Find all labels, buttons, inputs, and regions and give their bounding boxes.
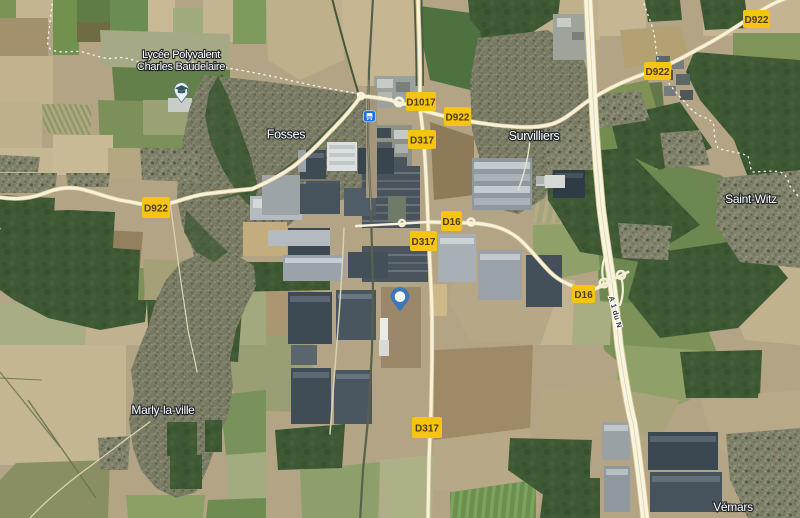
svg-text:D16: D16 (574, 290, 593, 301)
svg-text:Fosses: Fosses (267, 128, 306, 142)
svg-text:D317: D317 (412, 237, 436, 248)
svg-text:Vémars: Vémars (713, 500, 753, 514)
svg-text:D922: D922 (144, 204, 168, 215)
svg-text:D317: D317 (410, 136, 434, 147)
svg-text:Charles Baudelaire: Charles Baudelaire (137, 61, 225, 73)
svg-text:Marly-la-ville: Marly-la-ville (131, 403, 195, 417)
svg-text:Lycée Polyvalent: Lycée Polyvalent (142, 49, 220, 61)
svg-text:D922: D922 (646, 67, 670, 78)
svg-text:Saint-Witz: Saint-Witz (725, 192, 777, 206)
svg-text:D16: D16 (442, 217, 461, 228)
svg-text:Survilliers: Survilliers (509, 129, 560, 143)
svg-text:D1017: D1017 (406, 98, 436, 109)
svg-text:D922: D922 (745, 15, 769, 26)
svg-text:D922: D922 (446, 113, 470, 124)
svg-text:D317: D317 (415, 424, 439, 435)
